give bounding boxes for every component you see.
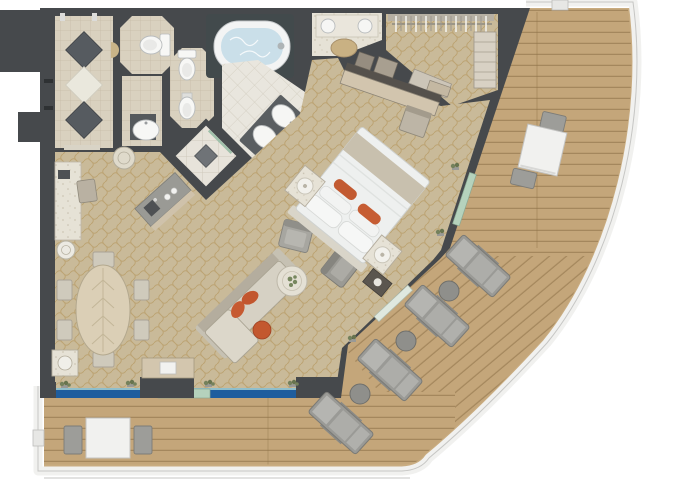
floor-plan [0,0,680,486]
corridor-wall-block [0,10,46,72]
railing-post [552,0,568,10]
basin-room [122,76,162,146]
entry-hall [55,13,119,150]
window-pier [140,377,194,398]
lounger-side-table [396,331,416,351]
vanity-bowl [358,19,372,33]
floor-diamond-inlay [66,32,103,139]
orange-pouf [253,321,271,339]
vanity-bowl [321,19,335,33]
corridor-wall-block [18,112,46,142]
telephone [58,170,70,179]
guest-wc [120,16,174,74]
tv [160,362,176,374]
vanity-stool [331,39,357,57]
coffee-table [277,266,307,296]
toilet [140,34,170,56]
deck-chair [64,426,82,454]
console-table [142,358,194,378]
entry-door-leaf [60,13,65,21]
window-pier [296,377,338,398]
deck-table [86,418,130,458]
planter [57,241,75,259]
desk-chair [77,179,98,203]
lounger-side-table [439,281,459,301]
threshold [64,145,100,150]
pedestal-basin [130,114,159,140]
deck-chair [134,426,152,454]
tub-faucet [278,43,285,50]
door-hinge [44,106,53,110]
square-plant-table [52,350,78,376]
door-hinge [44,79,53,83]
suite-floor-plan [0,0,680,486]
entry-door-leaf [92,13,97,21]
railing-post [33,430,44,446]
lounger-side-table [350,384,370,404]
toilet [178,50,196,80]
round-side-table [113,147,135,169]
